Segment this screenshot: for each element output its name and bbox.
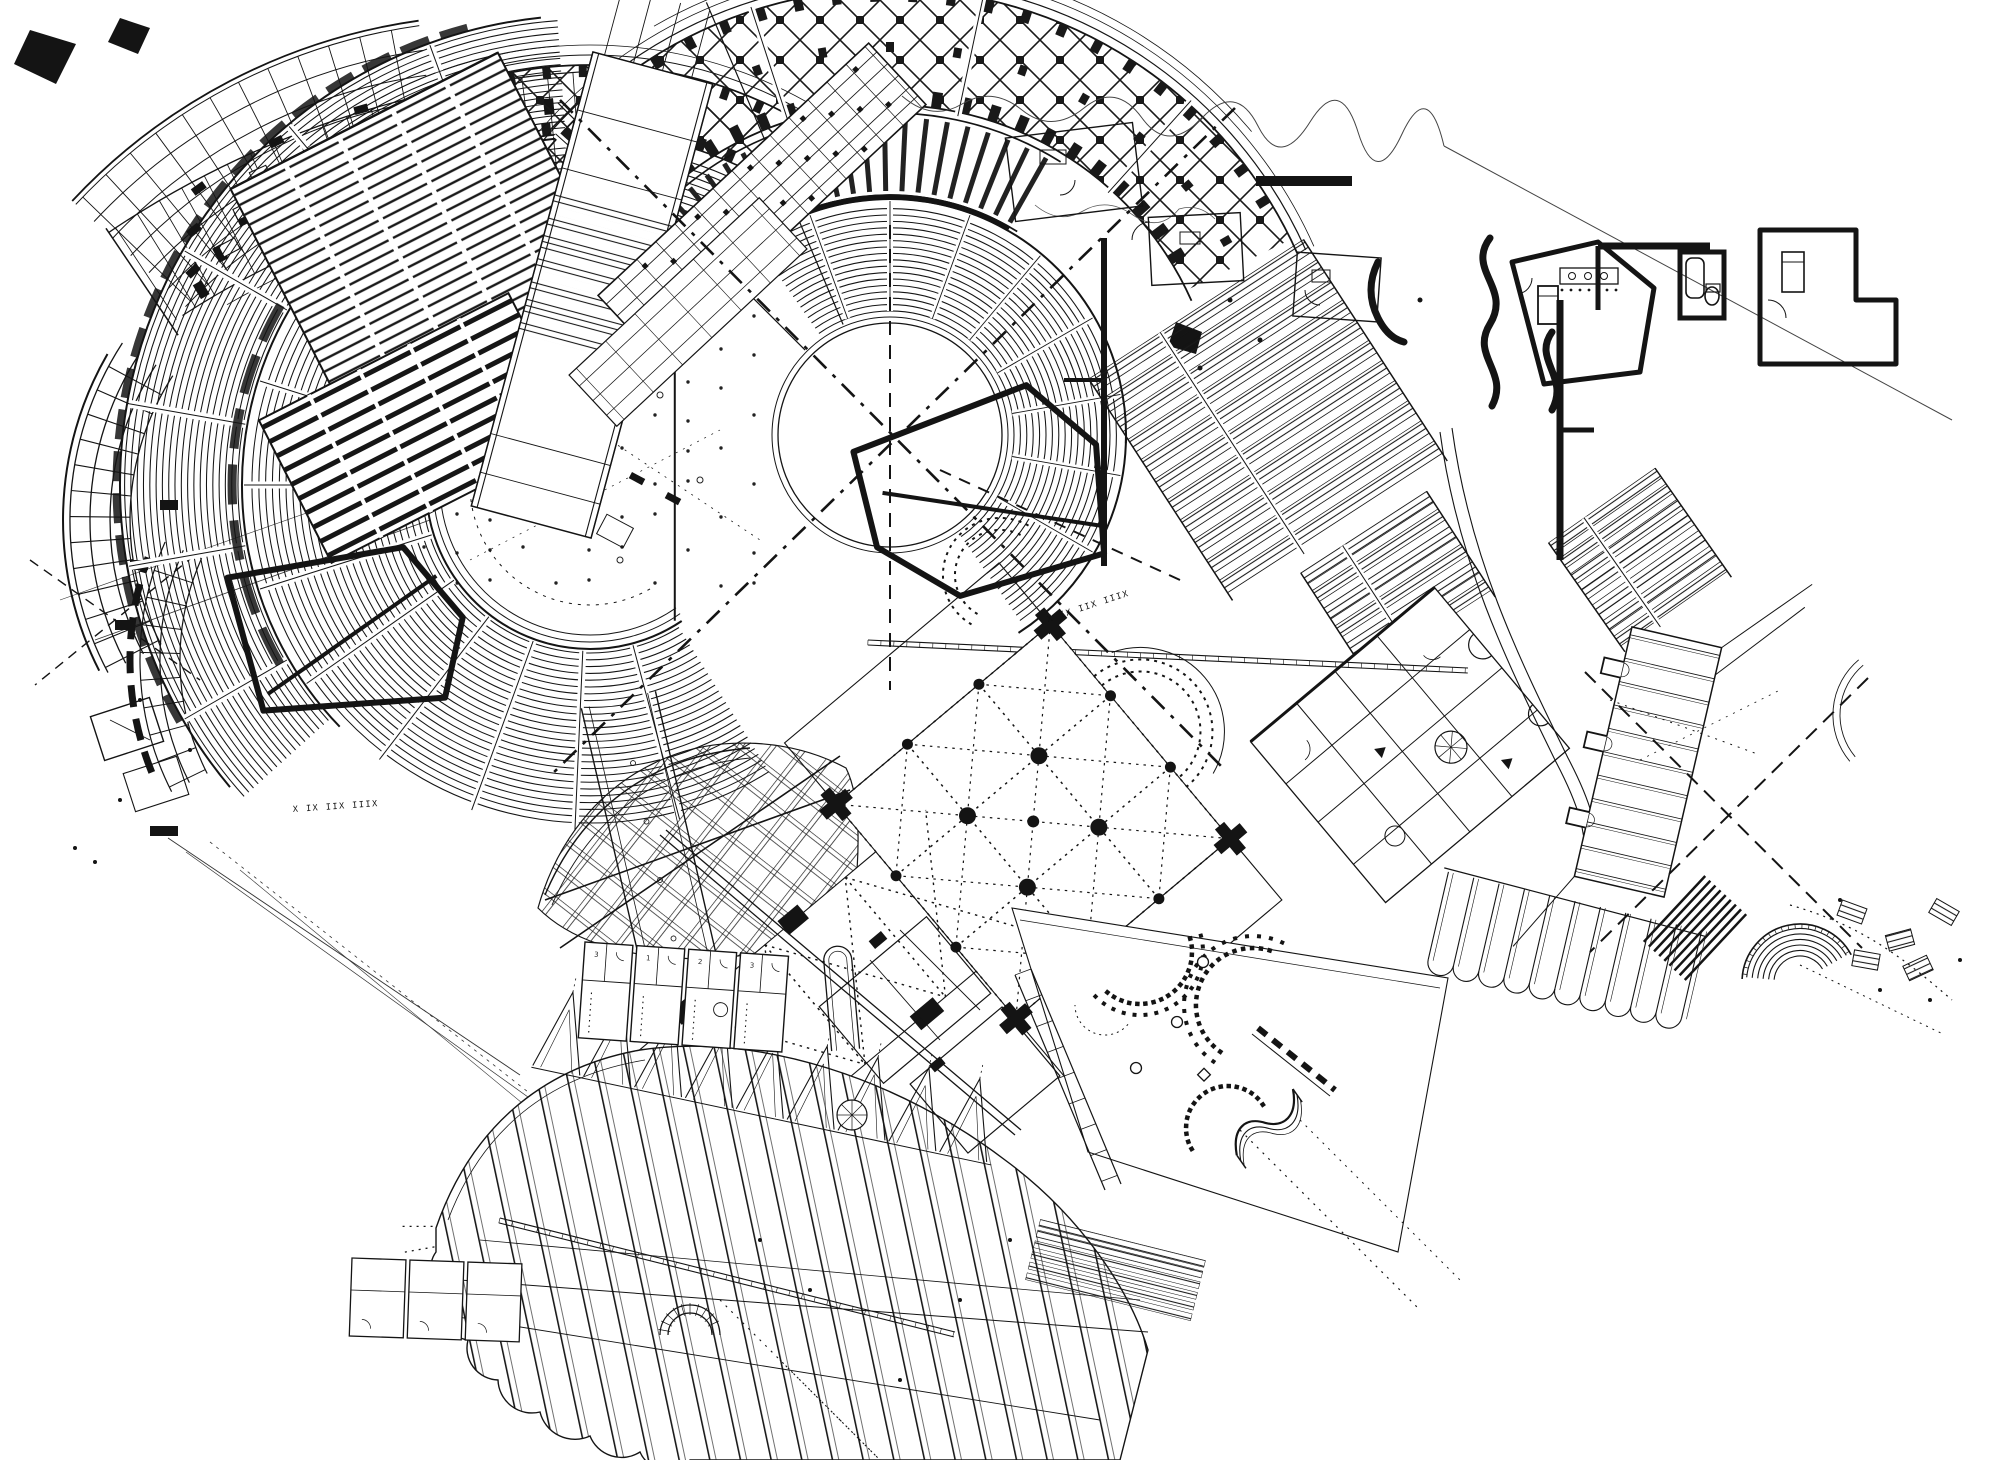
roman-numeral-marks-west: X IX IIX IIIX [293,799,380,815]
architectural-plan-collage: X IX IIX IIIX X IX IIX IIIX 3 1 2 3 [0,0,2000,1460]
monastery-room-complex [1251,587,1570,902]
apartment-unit-rows [578,942,788,1052]
unit-number: 1 [646,954,651,962]
roman-numeral-marks-east: X IX IIX IIIX [1046,589,1131,625]
ribbed-fan-roof [431,1046,1148,1460]
plan-collage-drawing: X IX IIX IIIX X IX IIX IIIX 3 1 2 3 [0,0,2000,1460]
basilica-dotted-vault-grid [943,518,1029,624]
unit-number: 2 [698,958,703,966]
unit-number: 3 [749,962,754,970]
scattered-hatched-blocks [1790,898,1962,1035]
unit-number: 3 [594,951,599,959]
apartment-unit-rows [349,1258,522,1342]
dense-courtyard-block-east [844,370,1129,619]
stepped-seating-banks [1549,468,1732,652]
